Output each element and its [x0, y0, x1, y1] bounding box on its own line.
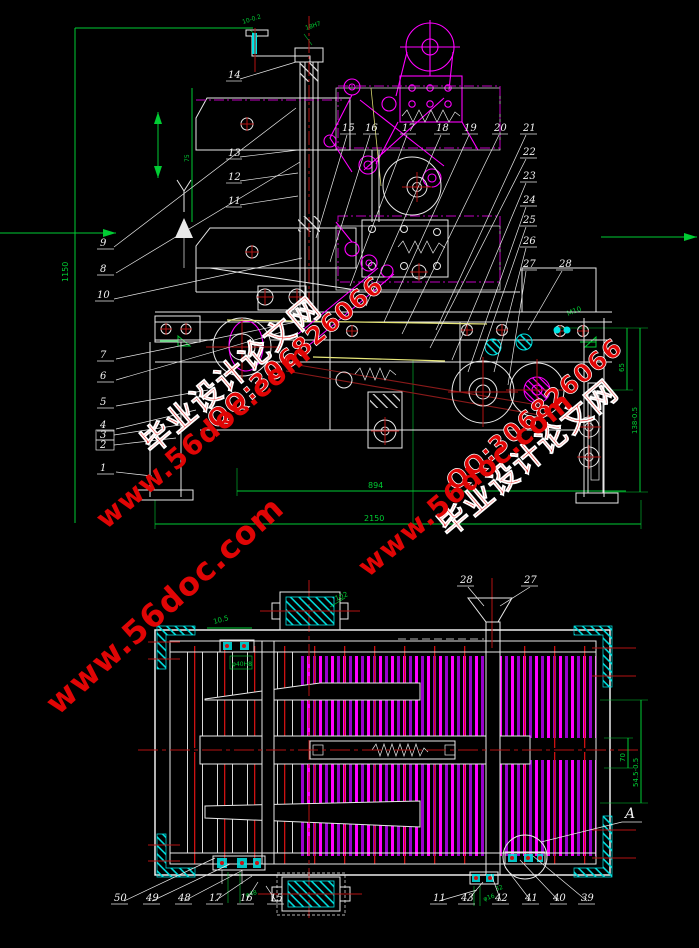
spring	[398, 241, 445, 253]
feeder-mechanism	[298, 20, 500, 346]
front-view: 1150 75 10-0.2 18H7 M10 65 138-0.5 894 2…	[0, 13, 697, 529]
part-label: 9	[100, 238, 107, 249]
dim-bottom-overall: 2150	[364, 514, 384, 523]
part-label: 23	[522, 171, 536, 182]
cyan-roller	[516, 334, 532, 350]
part-label: 26	[522, 236, 536, 247]
watermark-site: www.56doc.com	[351, 385, 579, 584]
dim-mid-right: M10	[566, 305, 583, 318]
spring	[355, 368, 396, 380]
part-label: 1	[100, 463, 106, 474]
part-label: 16	[240, 893, 253, 904]
part-label: 27	[523, 575, 537, 586]
arrow-up-icon	[154, 112, 162, 124]
dim-right-inner: 65	[618, 363, 626, 372]
dim-column: 75	[184, 154, 191, 162]
dim-top-left: 10-0.2	[241, 13, 262, 26]
dim-right-inner: 70	[619, 753, 627, 762]
part-label: 27	[522, 259, 536, 270]
watermark-site: www.56doc.com	[89, 337, 317, 536]
part-label: 10	[97, 290, 110, 301]
cyan-roller	[485, 339, 501, 355]
part-label: 48	[177, 893, 191, 904]
dim-top-right: 18H7	[304, 20, 322, 32]
dim-top-left: 10.5	[212, 614, 229, 626]
part-label: 21	[522, 123, 536, 134]
part-label: 17	[209, 893, 222, 904]
arrow-right-icon	[684, 233, 697, 241]
dim-bearing-box: φ40H8	[232, 661, 252, 668]
part-label: 40	[552, 893, 566, 904]
arrow-down-icon	[154, 166, 162, 178]
part-label: 6	[100, 371, 107, 382]
part-label: 19	[464, 123, 477, 134]
dim-bottom-inner: 894	[368, 481, 383, 490]
cross-member	[262, 641, 274, 864]
part-label: 11	[433, 893, 446, 904]
part-label: 15	[342, 123, 355, 134]
part-label: 49	[145, 893, 159, 904]
part-label: 15	[270, 893, 283, 904]
cad-canvas: 1150 75 10-0.2 18H7 M10 65 138-0.5 894 2…	[0, 0, 699, 948]
dim-right-outer: 54.5-0.5	[632, 758, 640, 787]
part-label: 2	[99, 440, 106, 451]
part-label: 16	[365, 123, 378, 134]
part-label: 7	[100, 350, 107, 361]
feed-funnel	[468, 598, 512, 622]
part-label: 8	[100, 264, 106, 275]
part-label: 50	[114, 893, 127, 904]
part-label: 41	[524, 893, 538, 904]
part-label: 20	[493, 123, 507, 134]
part-label: 42	[494, 893, 508, 904]
dim-bottom-len: 32	[494, 884, 504, 893]
part-label: 25	[522, 215, 536, 226]
part-label: 28	[558, 259, 572, 270]
part-label: 22	[522, 147, 536, 158]
spring	[402, 110, 460, 122]
detail-label: A	[623, 806, 635, 822]
part-label: 12	[228, 172, 241, 183]
datum-symbol	[177, 180, 191, 212]
dim-overall-height: 1150	[61, 262, 70, 282]
part-label: 39	[581, 893, 594, 904]
part-label: 13	[228, 148, 241, 159]
plan-view: A 70 54.5-0.5 10.5 φ40H8 102 φ16 32 φ48 …	[111, 575, 648, 918]
part-label: 18	[436, 123, 449, 134]
center-shaft	[486, 622, 500, 875]
part-label: 5	[100, 397, 106, 408]
part-label: 14	[228, 70, 241, 81]
dim-right-outer: 138-0.5	[631, 407, 639, 434]
drawing-sheet: 1150 75 10-0.2 18H7 M10 65 138-0.5 894 2…	[0, 0, 699, 948]
part-label: 17	[402, 123, 415, 134]
dim-bottom-fit: φ16	[482, 893, 495, 903]
part-label: 24	[522, 195, 536, 206]
arrow-right-icon	[103, 229, 116, 237]
part-label: 28	[459, 575, 473, 586]
part-label: 11	[228, 196, 241, 207]
part-label: 43	[460, 893, 474, 904]
